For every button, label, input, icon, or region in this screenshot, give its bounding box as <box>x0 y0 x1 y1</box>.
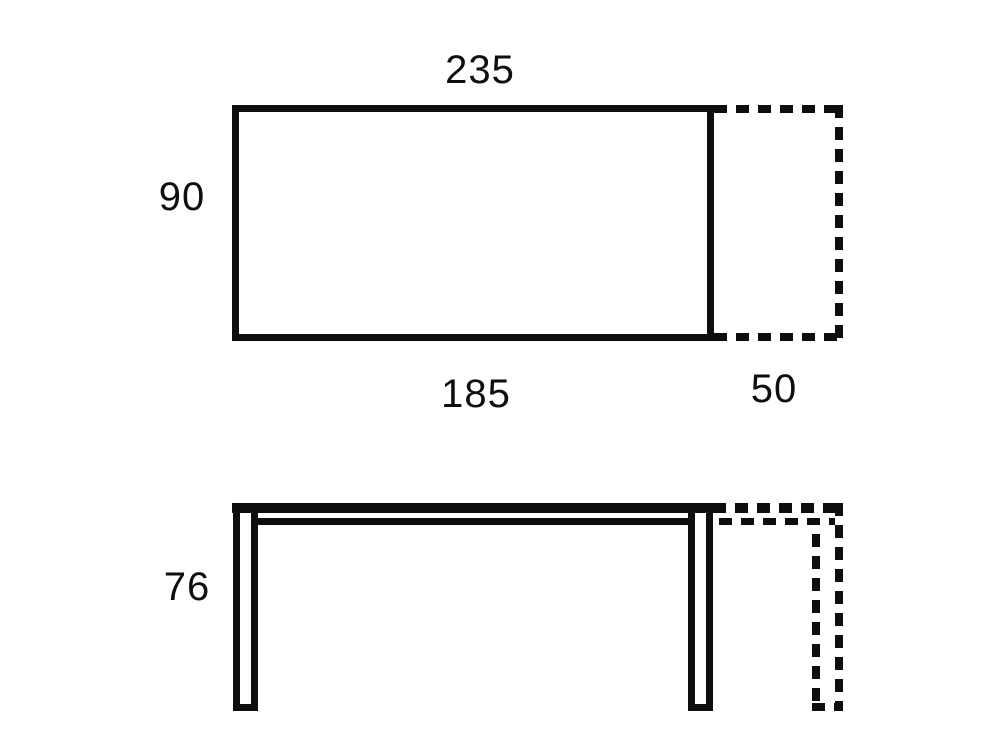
side-extension-apron-dashed <box>713 518 835 525</box>
side-extension-tabletop-dashed <box>713 503 843 513</box>
side-extension-leg-outer-dashed <box>835 503 843 711</box>
dimension-label-extension-width: 50 <box>751 369 798 409</box>
side-left-leg-solid <box>233 513 258 711</box>
dimension-label-main-width: 185 <box>441 374 511 414</box>
dimension-label-depth: 90 <box>159 177 206 217</box>
side-right-leg-solid <box>688 513 713 711</box>
side-extension-leg-bottom-dashed <box>812 703 843 711</box>
extension-outline-top-dashed <box>714 105 843 113</box>
table-dimension-diagram: 235 90 185 50 76 <box>0 0 1000 750</box>
dimension-label-total-width: 235 <box>445 50 515 90</box>
side-tabletop-bar-solid <box>232 503 713 513</box>
extension-outline-bottom-dashed <box>714 333 843 341</box>
tabletop-outline-solid <box>232 105 714 341</box>
extension-outline-right-dashed <box>835 105 843 341</box>
side-extension-leg-inner-dashed <box>812 528 820 711</box>
side-apron-line-solid <box>252 518 697 525</box>
dimension-label-height: 76 <box>164 567 211 607</box>
